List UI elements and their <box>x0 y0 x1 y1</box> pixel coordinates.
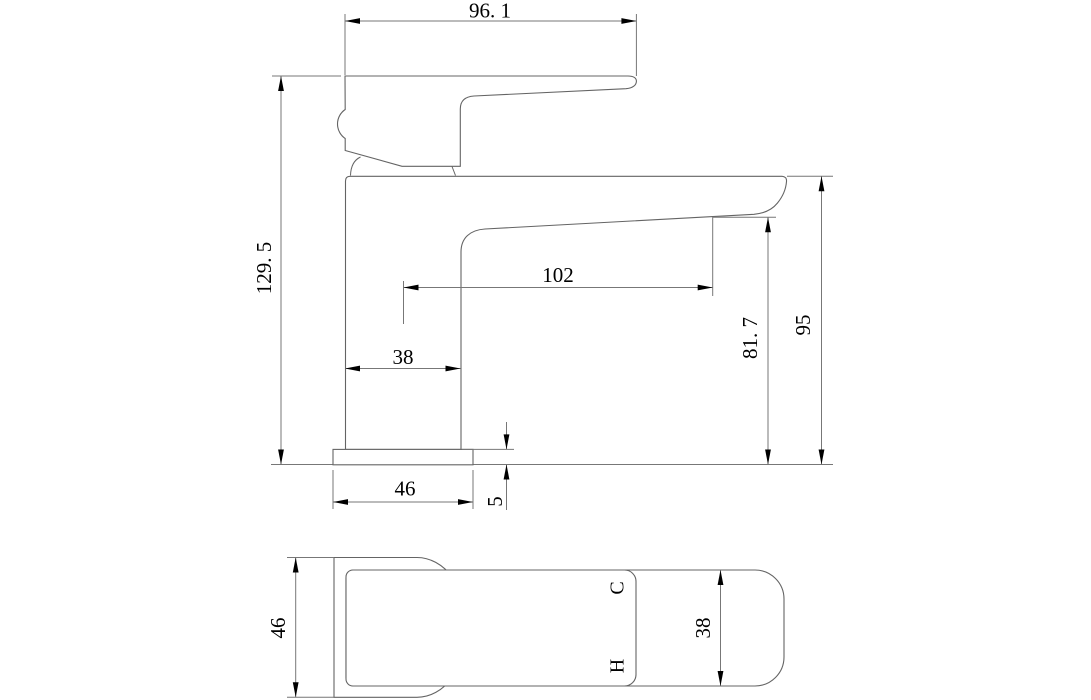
svg-text:C: C <box>607 581 629 594</box>
svg-text:81. 7: 81. 7 <box>738 317 762 359</box>
svg-text:46: 46 <box>266 618 290 639</box>
svg-text:46: 46 <box>395 477 416 501</box>
svg-text:5: 5 <box>483 496 507 507</box>
svg-text:129. 5: 129. 5 <box>252 242 276 295</box>
svg-text:95: 95 <box>791 315 815 336</box>
svg-text:96. 1: 96. 1 <box>469 0 511 23</box>
svg-text:102: 102 <box>542 263 574 287</box>
svg-text:H: H <box>607 659 629 673</box>
svg-text:38: 38 <box>691 618 715 639</box>
svg-text:38: 38 <box>393 345 414 369</box>
